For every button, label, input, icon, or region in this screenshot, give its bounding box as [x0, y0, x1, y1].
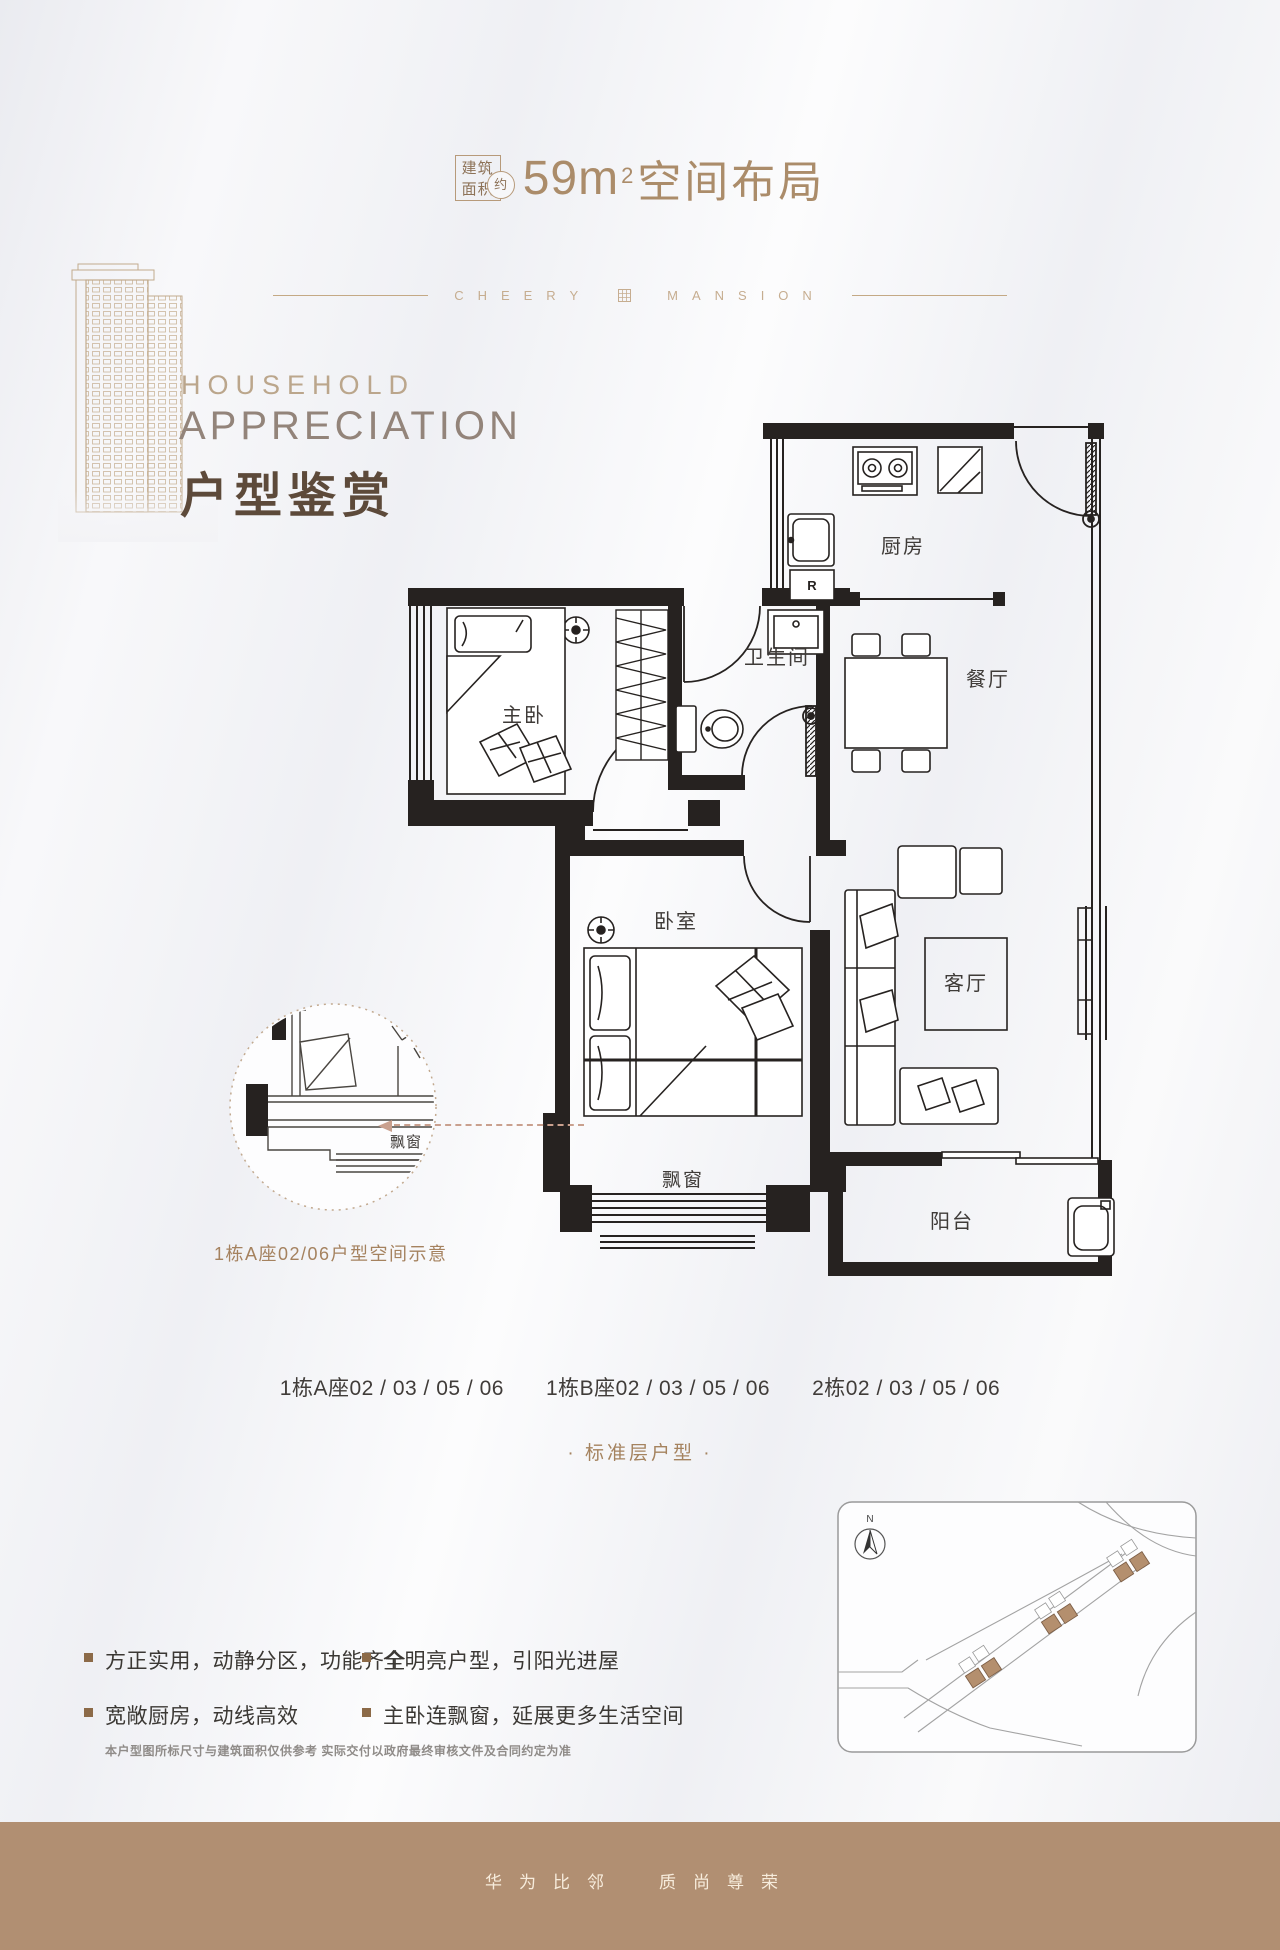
- callout-dashed-line: [394, 1124, 584, 1126]
- disclaimer-text: 本户型图所标尺寸与建筑面积仅供参考 实际交付以政府最终审核文件及合同约定为准: [105, 1742, 571, 1759]
- selling-point-3: 全明亮户型，引阳光进屋: [362, 1645, 620, 1675]
- selling-point-text: 主卧连飘窗，延展更多生活空间: [383, 1700, 684, 1730]
- approx-badge: 约: [487, 171, 515, 199]
- title-text: 空间布局: [637, 146, 825, 210]
- fridge-label: R: [807, 578, 817, 593]
- north-label: N: [866, 1514, 873, 1525]
- hero-title-cn: 户型鉴赏: [180, 456, 396, 526]
- selling-point-text: 方正实用，动静分区，功能齐全: [105, 1645, 406, 1675]
- brand-word-left: CHEERY: [454, 288, 592, 303]
- dining-furniture: [845, 634, 947, 772]
- selling-point-4: 主卧连飘窗，延展更多生活空间: [362, 1700, 684, 1730]
- page-title: 建筑 面积 约 59m 2 空间布局: [0, 138, 1280, 218]
- slogan-part1: 华为比邻: [485, 1868, 621, 1893]
- room-label-balcony: 阳台: [930, 1210, 974, 1233]
- site-map: N: [830, 1492, 1210, 1764]
- selling-point-text: 宽敞厨房，动线高效: [105, 1700, 299, 1730]
- wardrobe: [616, 610, 668, 760]
- unit-group-1: 1栋A座02 / 03 / 05 / 06: [280, 1372, 504, 1402]
- room-label-dining: 餐厅: [966, 668, 1010, 691]
- area-exponent: 2: [621, 163, 633, 189]
- hero-eyebrow: HOUSEHOLD: [181, 370, 415, 401]
- washing-machine: [1068, 1198, 1114, 1256]
- bullet-square-icon: [84, 1653, 93, 1662]
- room-label-master-bedroom: 主卧: [502, 704, 546, 727]
- master-bed: [447, 608, 571, 794]
- room-label-living-room: 客厅: [944, 972, 988, 995]
- room-label-kitchen: 厨房: [881, 535, 925, 558]
- unit-group-3: 2栋02 / 03 / 05 / 06: [812, 1372, 1000, 1402]
- floor-type-note: · 标准层户型 ·: [0, 1438, 1280, 1465]
- divider-line-left: [273, 295, 428, 296]
- room-label-bedroom: 卧室: [654, 910, 698, 933]
- floorplan-drawing: R: [400, 410, 1140, 1320]
- room-label-bathroom: 卫生间: [744, 646, 810, 669]
- selling-point-text: 全明亮户型，引阳光进屋: [383, 1645, 620, 1675]
- detail-caption: 1栋A座02/06户型空间示意: [214, 1240, 448, 1266]
- selling-point-2: 宽敞厨房，动线高效: [84, 1700, 299, 1730]
- slogan-part2: 质尚尊荣: [659, 1868, 795, 1893]
- selling-point-1: 方正实用，动静分区，功能齐全: [84, 1645, 406, 1675]
- bullet-square-icon: [362, 1653, 371, 1662]
- room-label-bay-window: 飘窗: [662, 1169, 704, 1191]
- poster-page: 建筑 面积 约 59m 2 空间布局 CHEERY MANSION: [0, 0, 1280, 1950]
- detail-bay-window-label: 飘窗: [390, 1133, 422, 1151]
- bullet-square-icon: [362, 1708, 371, 1717]
- kitchen-fixtures: [788, 447, 982, 600]
- unit-numbers-row: 1栋A座02 / 03 / 05 / 06 1栋B座02 / 03 / 05 /…: [0, 1372, 1280, 1402]
- sliding-door: [942, 1152, 1098, 1164]
- divider-line-right: [852, 295, 1007, 296]
- footer-band: 华为比邻 质尚尊荣: [0, 1822, 1280, 1950]
- brand-word-right: MANSION: [667, 288, 826, 303]
- brand-grid-icon: [618, 289, 631, 302]
- footer-slogan: 华为比邻 质尚尊荣: [0, 1868, 1280, 1893]
- unit-group-2: 1栋B座02 / 03 / 05 / 06: [546, 1372, 770, 1402]
- bedroom-bed: [584, 948, 802, 1116]
- walls: [408, 423, 1112, 1276]
- area-value: 59m: [523, 151, 619, 206]
- bullet-square-icon: [84, 1708, 93, 1717]
